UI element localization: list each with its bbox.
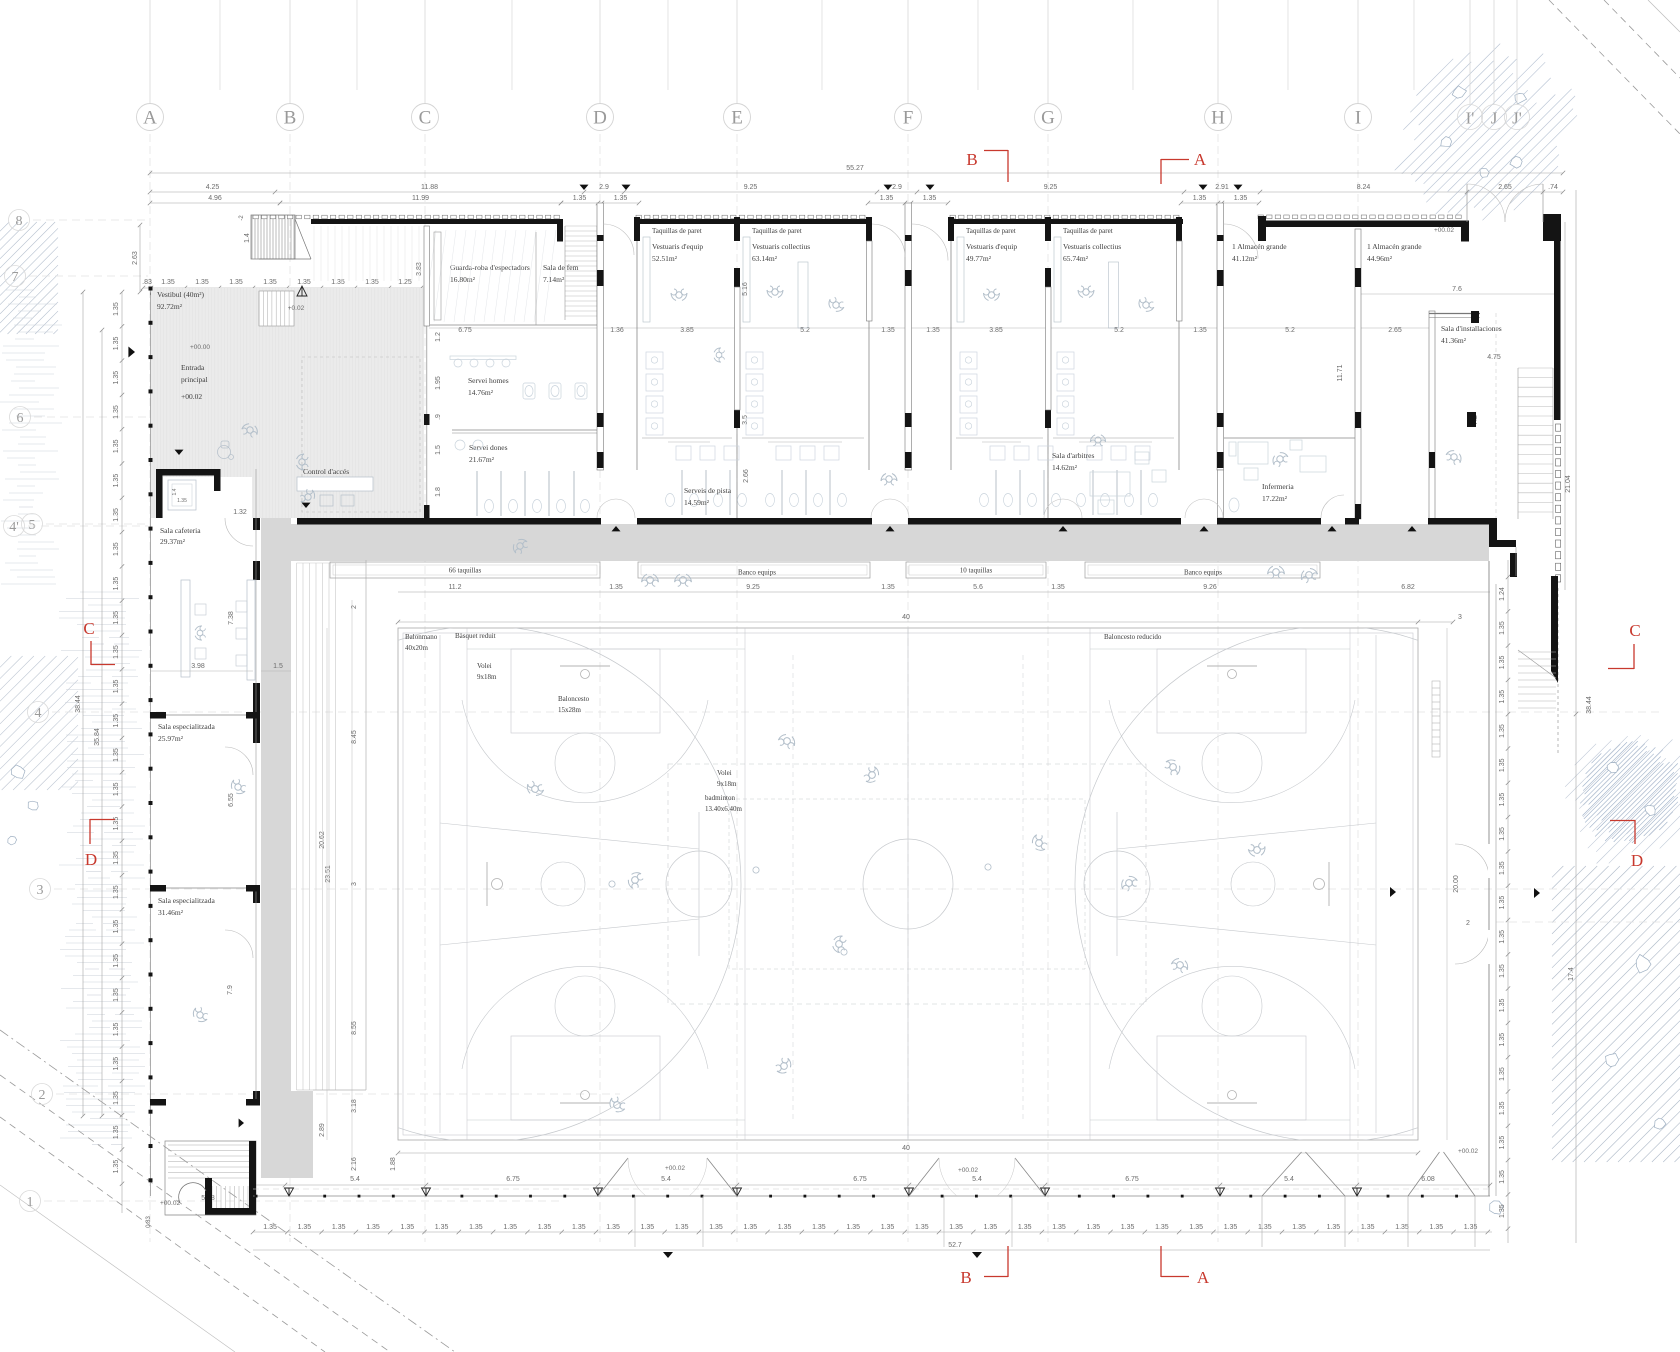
svg-text:+00.00: +00.00 — [190, 344, 210, 351]
svg-text:+00.02: +00.02 — [665, 1165, 685, 1172]
svg-text:1.35: 1.35 — [113, 405, 120, 419]
svg-text:1.4: 1.4 — [172, 488, 178, 495]
svg-text:1.35: 1.35 — [1499, 1136, 1506, 1150]
svg-text:1.35: 1.35 — [195, 279, 209, 286]
svg-text:1.35: 1.35 — [113, 851, 120, 865]
svg-text:Baloncesto reducido: Baloncesto reducido — [1104, 633, 1162, 641]
svg-text:1.35: 1.35 — [229, 279, 243, 286]
svg-text:5.4: 5.4 — [661, 1176, 671, 1183]
svg-text:1.35: 1.35 — [1189, 1224, 1203, 1231]
svg-text:7.14m²: 7.14m² — [543, 275, 565, 284]
svg-text:.9: .9 — [435, 414, 442, 420]
svg-text:Vestibul (40m²): Vestibul (40m²) — [157, 290, 205, 299]
svg-text:1.35: 1.35 — [113, 1057, 120, 1071]
svg-text:C: C — [1629, 621, 1640, 640]
svg-text:9.25: 9.25 — [746, 584, 760, 591]
svg-text:4.25: 4.25 — [206, 184, 220, 191]
svg-text:1.35: 1.35 — [263, 1224, 277, 1231]
svg-text:H: H — [1211, 108, 1225, 129]
svg-text:D: D — [85, 850, 97, 869]
svg-text:C: C — [419, 108, 432, 129]
svg-text:44.96m²: 44.96m² — [1367, 254, 1393, 263]
svg-text:1.35: 1.35 — [298, 1224, 312, 1231]
svg-text:1.35: 1.35 — [113, 645, 120, 659]
svg-text:14.62m²: 14.62m² — [1052, 463, 1078, 472]
svg-text:+00.02: +00.02 — [181, 392, 202, 401]
svg-text:1.35: 1.35 — [113, 920, 120, 934]
svg-text:1.35: 1.35 — [1086, 1224, 1100, 1231]
svg-text:1.35: 1.35 — [1395, 1224, 1409, 1231]
svg-text:1.35: 1.35 — [113, 748, 120, 762]
svg-text:1.35: 1.35 — [1499, 690, 1506, 704]
svg-text:65.74m²: 65.74m² — [1063, 254, 1089, 263]
svg-text:Infermeria: Infermeria — [1262, 482, 1294, 491]
svg-text:B: B — [284, 108, 297, 129]
svg-text:J: J — [1491, 109, 1498, 128]
svg-text:7.9: 7.9 — [227, 985, 234, 995]
svg-text:2: 2 — [39, 1088, 46, 1103]
svg-text:Servei homes: Servei homes — [468, 376, 509, 385]
svg-text:1 Almacén grande: 1 Almacén grande — [1232, 242, 1287, 251]
svg-text:6.08: 6.08 — [1421, 1176, 1435, 1183]
svg-text:23.51: 23.51 — [325, 865, 332, 883]
svg-text:9.25: 9.25 — [1044, 184, 1058, 191]
svg-text:40x20m: 40x20m — [405, 644, 429, 652]
svg-text:3.5: 3.5 — [742, 415, 749, 425]
svg-text:10 taquillas: 10 taquillas — [960, 567, 993, 575]
svg-text:1.5: 1.5 — [435, 445, 442, 455]
svg-text:1.35: 1.35 — [1121, 1224, 1135, 1231]
svg-text:1.35: 1.35 — [113, 714, 120, 728]
svg-text:.83: .83 — [142, 279, 152, 286]
svg-text:1.35: 1.35 — [881, 1224, 895, 1231]
svg-text:29.37m²: 29.37m² — [160, 537, 186, 546]
svg-text:1.35: 1.35 — [1499, 724, 1506, 738]
svg-text:Baloncesto: Baloncesto — [558, 695, 590, 703]
svg-text:3.83: 3.83 — [416, 262, 423, 276]
svg-text:Taquillas de paret: Taquillas de paret — [652, 227, 702, 235]
svg-text:1.35: 1.35 — [1499, 793, 1506, 807]
svg-text:1.35: 1.35 — [113, 1091, 120, 1105]
svg-text:Banco equips: Banco equips — [1184, 569, 1222, 577]
svg-text:1.35: 1.35 — [177, 498, 187, 504]
svg-text:6.75: 6.75 — [1125, 1176, 1139, 1183]
svg-text:16.80m²: 16.80m² — [450, 275, 476, 284]
svg-text:F: F — [903, 108, 914, 129]
svg-text:49.77m²: 49.77m² — [966, 254, 992, 263]
svg-text:1.35: 1.35 — [675, 1224, 689, 1231]
svg-text:Vestuaris collectius: Vestuaris collectius — [752, 242, 810, 251]
svg-text:3.98: 3.98 — [191, 663, 205, 670]
svg-text:7.6: 7.6 — [1452, 286, 1462, 293]
svg-text:1.35: 1.35 — [1429, 1224, 1443, 1231]
svg-text:principal: principal — [181, 375, 208, 384]
svg-text:1.35: 1.35 — [113, 1125, 120, 1139]
svg-text:Sala especialitzada: Sala especialitzada — [158, 722, 216, 731]
svg-text:4.75: 4.75 — [1487, 354, 1501, 361]
svg-text:1.35: 1.35 — [366, 1224, 380, 1231]
svg-text:1.35: 1.35 — [573, 195, 587, 202]
svg-text:1.5: 1.5 — [273, 663, 283, 670]
svg-text:9.26: 9.26 — [1203, 584, 1217, 591]
svg-text:11.88: 11.88 — [421, 184, 438, 191]
svg-text:D: D — [593, 108, 607, 129]
svg-text:1.35: 1.35 — [400, 1224, 414, 1231]
svg-text:1.35: 1.35 — [1193, 195, 1207, 202]
svg-text:1.35: 1.35 — [1499, 930, 1506, 944]
svg-text:2.66: 2.66 — [743, 469, 750, 483]
svg-text:6.75: 6.75 — [506, 1176, 520, 1183]
svg-text:4': 4' — [9, 520, 19, 535]
svg-text:2.63: 2.63 — [132, 251, 139, 265]
svg-text:1.35: 1.35 — [113, 439, 120, 453]
svg-text:1.35: 1.35 — [778, 1224, 792, 1231]
svg-text:Sala d'installaciones: Sala d'installaciones — [1441, 324, 1502, 333]
svg-text:Sala de fem: Sala de fem — [543, 263, 579, 272]
svg-text:15x28m: 15x28m — [558, 706, 582, 714]
svg-text:7: 7 — [12, 270, 19, 285]
svg-text:1.35: 1.35 — [743, 1224, 757, 1231]
svg-text:66 taquillas: 66 taquillas — [449, 567, 482, 575]
svg-text:11.71: 11.71 — [1337, 364, 1344, 381]
svg-text:Entrada: Entrada — [181, 363, 205, 372]
svg-text:1.35: 1.35 — [297, 279, 311, 286]
svg-text:5: 5 — [29, 518, 36, 533]
svg-text:1.35: 1.35 — [606, 1224, 620, 1231]
svg-text:1.2: 1.2 — [435, 332, 442, 342]
svg-text:52.7: 52.7 — [948, 1242, 962, 1249]
svg-text:Guarda-roba d'espectadors: Guarda-roba d'espectadors — [450, 263, 530, 272]
svg-text:+0.02: +0.02 — [288, 305, 305, 312]
svg-text:21.67m²: 21.67m² — [469, 455, 495, 464]
svg-text:1.35: 1.35 — [331, 279, 345, 286]
svg-text:2.9: 2.9 — [599, 184, 609, 191]
svg-text:14.59m²: 14.59m² — [684, 498, 710, 507]
svg-text:1.35: 1.35 — [113, 1160, 120, 1174]
svg-text:1.35: 1.35 — [614, 195, 628, 202]
svg-text:Serveis de pista: Serveis de pista — [684, 486, 732, 495]
svg-text:1.35: 1.35 — [113, 611, 120, 625]
svg-text:Volei: Volei — [477, 662, 492, 670]
svg-text:1.35: 1.35 — [1499, 621, 1506, 635]
svg-text:+00.02: +00.02 — [958, 1167, 978, 1174]
svg-text:5.4: 5.4 — [972, 1176, 982, 1183]
svg-text:1.35: 1.35 — [113, 1022, 120, 1036]
svg-text:Taquillas de paret: Taquillas de paret — [966, 227, 1016, 235]
svg-text:1.35: 1.35 — [503, 1224, 517, 1231]
svg-text:1.35: 1.35 — [1499, 758, 1506, 772]
svg-text:1.35: 1.35 — [880, 195, 894, 202]
svg-text:9.25: 9.25 — [744, 184, 758, 191]
svg-text:E: E — [731, 108, 743, 129]
svg-text:5.4: 5.4 — [350, 1176, 360, 1183]
svg-text:1.35: 1.35 — [113, 885, 120, 899]
svg-text:1.35: 1.35 — [1499, 1204, 1506, 1218]
svg-text:4: 4 — [35, 706, 42, 721]
svg-text:1.35: 1.35 — [1499, 964, 1506, 978]
svg-text:1.35: 1.35 — [332, 1224, 346, 1231]
svg-text:1.35: 1.35 — [1499, 1067, 1506, 1081]
svg-text:A: A — [1194, 150, 1207, 169]
svg-text:-2: -2 — [239, 215, 245, 221]
svg-text:1.35: 1.35 — [949, 1224, 963, 1231]
svg-text:1.35: 1.35 — [609, 584, 623, 591]
svg-text:1.35: 1.35 — [1327, 1224, 1341, 1231]
svg-text:.74: .74 — [1548, 184, 1558, 191]
svg-text:1.35: 1.35 — [113, 336, 120, 350]
svg-text:31.46m²: 31.46m² — [158, 908, 184, 917]
svg-text:B: B — [966, 150, 977, 169]
svg-text:9x18m: 9x18m — [477, 673, 497, 681]
svg-text:J': J' — [1512, 109, 1522, 128]
svg-text:1: 1 — [27, 1195, 34, 1210]
svg-text:2: 2 — [1466, 920, 1470, 927]
svg-text:1.35: 1.35 — [1499, 998, 1506, 1012]
svg-text:1.35: 1.35 — [1155, 1224, 1169, 1231]
svg-text:38.44: 38.44 — [1586, 696, 1593, 714]
svg-text:1.35: 1.35 — [1018, 1224, 1032, 1231]
svg-text:1.35: 1.35 — [113, 782, 120, 796]
svg-text:14.76m²: 14.76m² — [468, 388, 494, 397]
svg-text:1.8: 1.8 — [435, 487, 442, 497]
svg-text:8.24: 8.24 — [1357, 184, 1371, 191]
svg-text:1.35: 1.35 — [923, 195, 937, 202]
svg-text:Servei dones: Servei dones — [469, 443, 508, 452]
svg-text:Taquillas de paret: Taquillas de paret — [1063, 227, 1113, 235]
svg-text:1.35: 1.35 — [113, 954, 120, 968]
svg-text:5.4: 5.4 — [1284, 1176, 1294, 1183]
svg-text:C: C — [83, 619, 94, 638]
svg-text:11.2: 11.2 — [448, 584, 461, 591]
svg-text:11.99: 11.99 — [412, 195, 429, 202]
svg-text:1.35: 1.35 — [1464, 1224, 1478, 1231]
svg-text:6.82: 6.82 — [1401, 584, 1415, 591]
svg-text:1.35: 1.35 — [1499, 1033, 1506, 1047]
svg-text:Balonmano: Balonmano — [405, 633, 438, 641]
svg-text:1.35: 1.35 — [113, 371, 120, 385]
svg-text:1.35: 1.35 — [709, 1224, 723, 1231]
svg-text:1.35: 1.35 — [469, 1224, 483, 1231]
svg-text:4.96: 4.96 — [208, 195, 222, 202]
svg-text:25.97m²: 25.97m² — [158, 734, 184, 743]
svg-text:1.35: 1.35 — [1499, 655, 1506, 669]
svg-text:1.35: 1.35 — [641, 1224, 655, 1231]
svg-text:8: 8 — [16, 214, 23, 229]
svg-text:6: 6 — [17, 411, 24, 426]
svg-text:7.38: 7.38 — [228, 611, 235, 625]
svg-text:1.35: 1.35 — [812, 1224, 826, 1231]
svg-text:Banco equips: Banco equips — [738, 569, 776, 577]
svg-text:1.35: 1.35 — [1051, 584, 1065, 591]
svg-text:40: 40 — [902, 614, 910, 621]
svg-text:1.4: 1.4 — [244, 233, 251, 243]
svg-text:1.35: 1.35 — [435, 1224, 449, 1231]
svg-text:1.35: 1.35 — [538, 1224, 552, 1231]
svg-text:2.91: 2.91 — [1215, 184, 1229, 191]
svg-text:+00.02: +00.02 — [160, 1200, 180, 1207]
svg-text:1.35: 1.35 — [113, 508, 120, 522]
svg-text:5.6: 5.6 — [973, 584, 983, 591]
svg-text:1.35: 1.35 — [1499, 1170, 1506, 1184]
svg-text:1.35: 1.35 — [984, 1224, 998, 1231]
svg-text:41.12m²: 41.12m² — [1232, 254, 1258, 263]
svg-text:B: B — [960, 1268, 971, 1287]
svg-text:Sala cafeteria: Sala cafeteria — [160, 526, 201, 535]
svg-text:+00.02: +00.02 — [1458, 1148, 1478, 1155]
svg-text:2.9: 2.9 — [892, 184, 902, 191]
svg-text:G: G — [1041, 108, 1055, 129]
svg-text:1.24: 1.24 — [1499, 587, 1506, 601]
svg-text:1.88: 1.88 — [390, 1157, 397, 1171]
svg-text:1.35: 1.35 — [113, 474, 120, 488]
svg-text:1.35: 1.35 — [113, 988, 120, 1002]
svg-text:+00.02: +00.02 — [1434, 227, 1454, 234]
svg-text:63.14m²: 63.14m² — [752, 254, 778, 263]
svg-text:Volei: Volei — [717, 769, 732, 777]
svg-text:I': I' — [1466, 109, 1475, 128]
svg-text:1.35: 1.35 — [113, 542, 120, 556]
svg-text:41.36m²: 41.36m² — [1441, 336, 1467, 345]
svg-text:1.35: 1.35 — [1052, 1224, 1066, 1231]
svg-text:3: 3 — [1458, 614, 1462, 621]
svg-text:1.35: 1.35 — [1258, 1224, 1272, 1231]
svg-text:92.72m²: 92.72m² — [157, 302, 183, 311]
svg-text:D: D — [1631, 851, 1643, 870]
svg-text:1.35: 1.35 — [113, 302, 120, 316]
svg-text:1.32: 1.32 — [233, 509, 247, 516]
svg-text:9x18m: 9x18m — [717, 780, 737, 788]
svg-text:1.35: 1.35 — [113, 577, 120, 591]
svg-text:40: 40 — [902, 1145, 910, 1152]
svg-text:1.35: 1.35 — [1224, 1224, 1238, 1231]
svg-text:1.35: 1.35 — [572, 1224, 586, 1231]
svg-text:1 Almacén grande: 1 Almacén grande — [1367, 242, 1422, 251]
svg-text:Taquillas de paret: Taquillas de paret — [752, 227, 802, 235]
svg-text:38.44: 38.44 — [75, 695, 82, 713]
svg-text:1.35: 1.35 — [846, 1224, 860, 1231]
svg-text:badminton: badminton — [705, 794, 735, 802]
svg-text:Sala especialitzada: Sala especialitzada — [158, 896, 216, 905]
svg-text:2.89: 2.89 — [319, 1123, 326, 1137]
svg-text:Vestuaris d'equip: Vestuaris d'equip — [966, 242, 1017, 251]
svg-text:1.35: 1.35 — [1234, 195, 1248, 202]
svg-text:17.4: 17.4 — [1568, 967, 1575, 981]
svg-text:6.55: 6.55 — [228, 793, 235, 807]
svg-text:1.95: 1.95 — [435, 376, 442, 390]
svg-text:Control d'accés: Control d'accés — [303, 467, 349, 476]
svg-text:3: 3 — [37, 883, 44, 898]
svg-text:2.65: 2.65 — [1498, 184, 1512, 191]
svg-text:Sala d'arbitres: Sala d'arbitres — [1052, 451, 1094, 460]
svg-text:I: I — [1355, 108, 1361, 129]
svg-text:1.35: 1.35 — [1499, 827, 1506, 841]
svg-text:35.84: 35.84 — [94, 728, 101, 746]
svg-text:6.75: 6.75 — [853, 1176, 867, 1183]
svg-text:1.35: 1.35 — [1499, 1101, 1506, 1115]
svg-text:13.40x6.40m: 13.40x6.40m — [705, 805, 743, 813]
svg-text:1.35: 1.35 — [1499, 896, 1506, 910]
svg-text:1.35: 1.35 — [1499, 861, 1506, 875]
svg-text:0.83: 0.83 — [146, 1216, 152, 1228]
svg-text:1.35: 1.35 — [1292, 1224, 1306, 1231]
svg-text:1.35: 1.35 — [161, 279, 175, 286]
svg-text:1.35: 1.35 — [113, 817, 120, 831]
svg-text:1.35: 1.35 — [113, 679, 120, 693]
svg-text:Vestuaris collectius: Vestuaris collectius — [1063, 242, 1121, 251]
svg-text:55.27: 55.27 — [846, 165, 864, 172]
svg-text:21.04: 21.04 — [1565, 475, 1572, 493]
svg-text:1.35: 1.35 — [915, 1224, 929, 1231]
svg-text:17.22m²: 17.22m² — [1262, 494, 1288, 503]
svg-text:20.00: 20.00 — [1453, 875, 1460, 893]
svg-text:1.35: 1.35 — [1361, 1224, 1375, 1231]
svg-text:Bàsquet reduit: Bàsquet reduit — [455, 632, 496, 640]
svg-text:1.35: 1.35 — [881, 584, 895, 591]
svg-text:A: A — [143, 108, 157, 129]
svg-text:A: A — [1197, 1268, 1210, 1287]
svg-text:52.51m²: 52.51m² — [652, 254, 678, 263]
svg-text:1.35: 1.35 — [263, 279, 277, 286]
svg-text:Vestuaris d'equip: Vestuaris d'equip — [652, 242, 703, 251]
